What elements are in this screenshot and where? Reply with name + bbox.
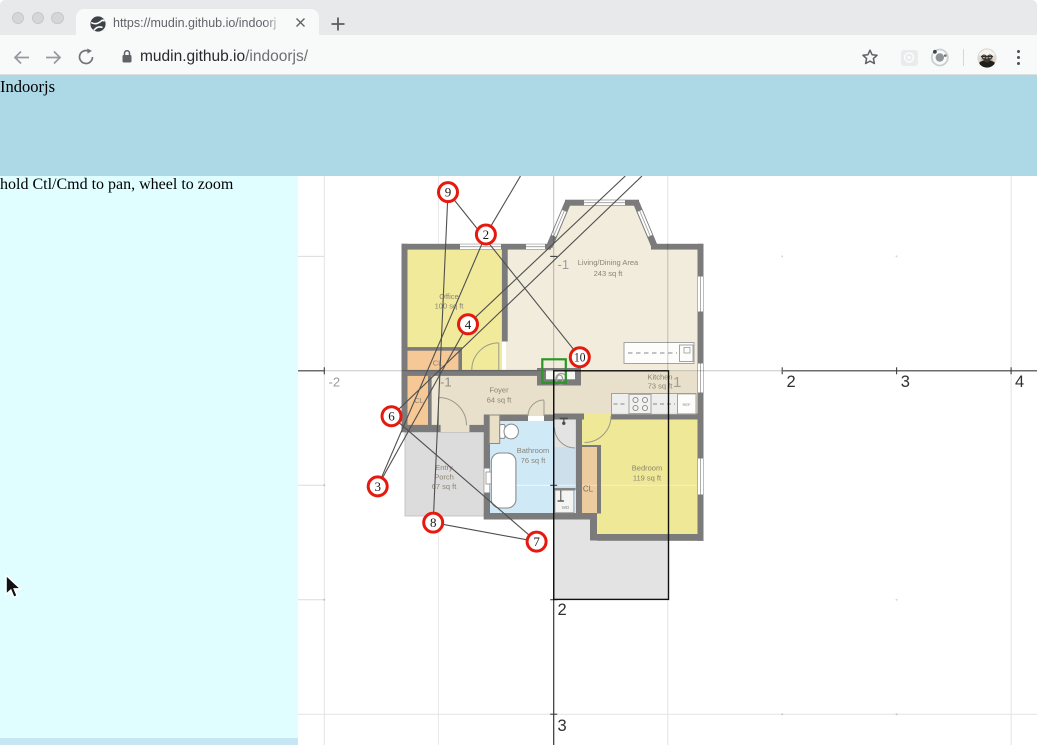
svg-text:Living/Dining Area: Living/Dining Area <box>578 258 639 267</box>
svg-text:100 sq ft: 100 sq ft <box>435 301 465 310</box>
svg-text:2: 2 <box>787 373 796 391</box>
svg-text:2: 2 <box>483 227 490 242</box>
svg-text:3: 3 <box>374 478 381 493</box>
svg-text:4: 4 <box>465 316 472 331</box>
svg-text:-2: -2 <box>329 374 341 389</box>
svg-text:-1: -1 <box>558 257 570 272</box>
svg-text:1: 1 <box>673 374 681 391</box>
svg-text:WD: WD <box>562 505 570 510</box>
svg-text:73 sq ft: 73 sq ft <box>648 381 674 390</box>
svg-text:119 sq ft: 119 sq ft <box>633 473 662 482</box>
svg-text:8: 8 <box>430 515 437 530</box>
svg-text:10: 10 <box>574 349 586 364</box>
svg-text:2: 2 <box>558 601 567 619</box>
svg-text:76 sq ft: 76 sq ft <box>521 456 547 465</box>
svg-text:4: 4 <box>1015 373 1024 391</box>
svg-text:67 sq ft: 67 sq ft <box>432 482 458 491</box>
svg-text:REF: REF <box>683 402 692 407</box>
svg-text:6: 6 <box>388 408 395 423</box>
svg-text:7: 7 <box>533 534 540 549</box>
svg-text:Porch: Porch <box>434 472 454 481</box>
svg-text:Office: Office <box>439 292 458 301</box>
svg-text:CL: CL <box>583 484 594 493</box>
svg-text:3: 3 <box>901 373 910 391</box>
svg-text:Foyer: Foyer <box>489 385 509 394</box>
svg-text:0: 0 <box>556 371 564 388</box>
svg-text:-1: -1 <box>440 374 452 389</box>
svg-text:Bathroom: Bathroom <box>517 446 550 455</box>
svg-text:Bedroom: Bedroom <box>632 463 662 472</box>
svg-text:243 sq ft: 243 sq ft <box>594 269 624 278</box>
svg-text:3: 3 <box>558 717 567 735</box>
svg-text:64 sq ft: 64 sq ft <box>487 395 513 404</box>
svg-text:9: 9 <box>445 184 452 199</box>
